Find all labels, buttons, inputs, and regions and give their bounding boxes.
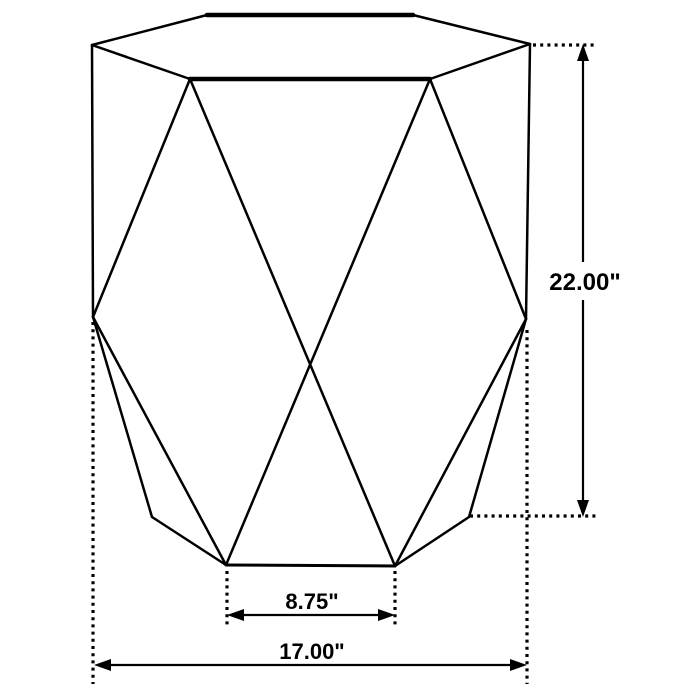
overall-width-dimension-label: 17.00" xyxy=(279,639,344,664)
table-top-hexagon xyxy=(92,15,530,79)
top-back-right-edge xyxy=(413,15,530,44)
dimension-diagram-page: 22.00" 8.75" 17.00" xyxy=(0,0,700,700)
facet-edge xyxy=(93,79,190,317)
top-front-right-edge xyxy=(430,44,530,79)
facet-edge xyxy=(93,317,226,565)
base-front-edge xyxy=(226,565,395,566)
left-side-edge xyxy=(92,45,93,317)
facet-edge xyxy=(430,79,526,319)
arrow-left-icon xyxy=(94,659,111,671)
dimension-overall-width: 17.00" xyxy=(93,322,527,684)
facet-edge xyxy=(395,319,526,566)
right-side-edge xyxy=(526,44,530,319)
table-body-silhouette xyxy=(92,44,530,566)
table-drawing xyxy=(92,15,530,566)
facet-diagonal-edge xyxy=(226,79,430,565)
dimension-base-width: 8.75" xyxy=(227,571,395,628)
base-width-dimension-label: 8.75" xyxy=(285,589,338,614)
arrow-right-icon xyxy=(510,659,527,671)
height-dimension-label: 22.00" xyxy=(549,269,620,296)
dimension-height: 22.00" xyxy=(470,44,621,517)
facet-diagonal-edge xyxy=(190,79,395,566)
table-dimension-drawing: 22.00" 8.75" 17.00" xyxy=(0,0,700,700)
arrow-left-icon xyxy=(227,609,244,621)
top-front-left-edge xyxy=(92,45,190,79)
table-facet-edges xyxy=(93,79,526,566)
top-back-left-edge xyxy=(92,15,207,45)
arrow-right-icon xyxy=(378,609,395,621)
